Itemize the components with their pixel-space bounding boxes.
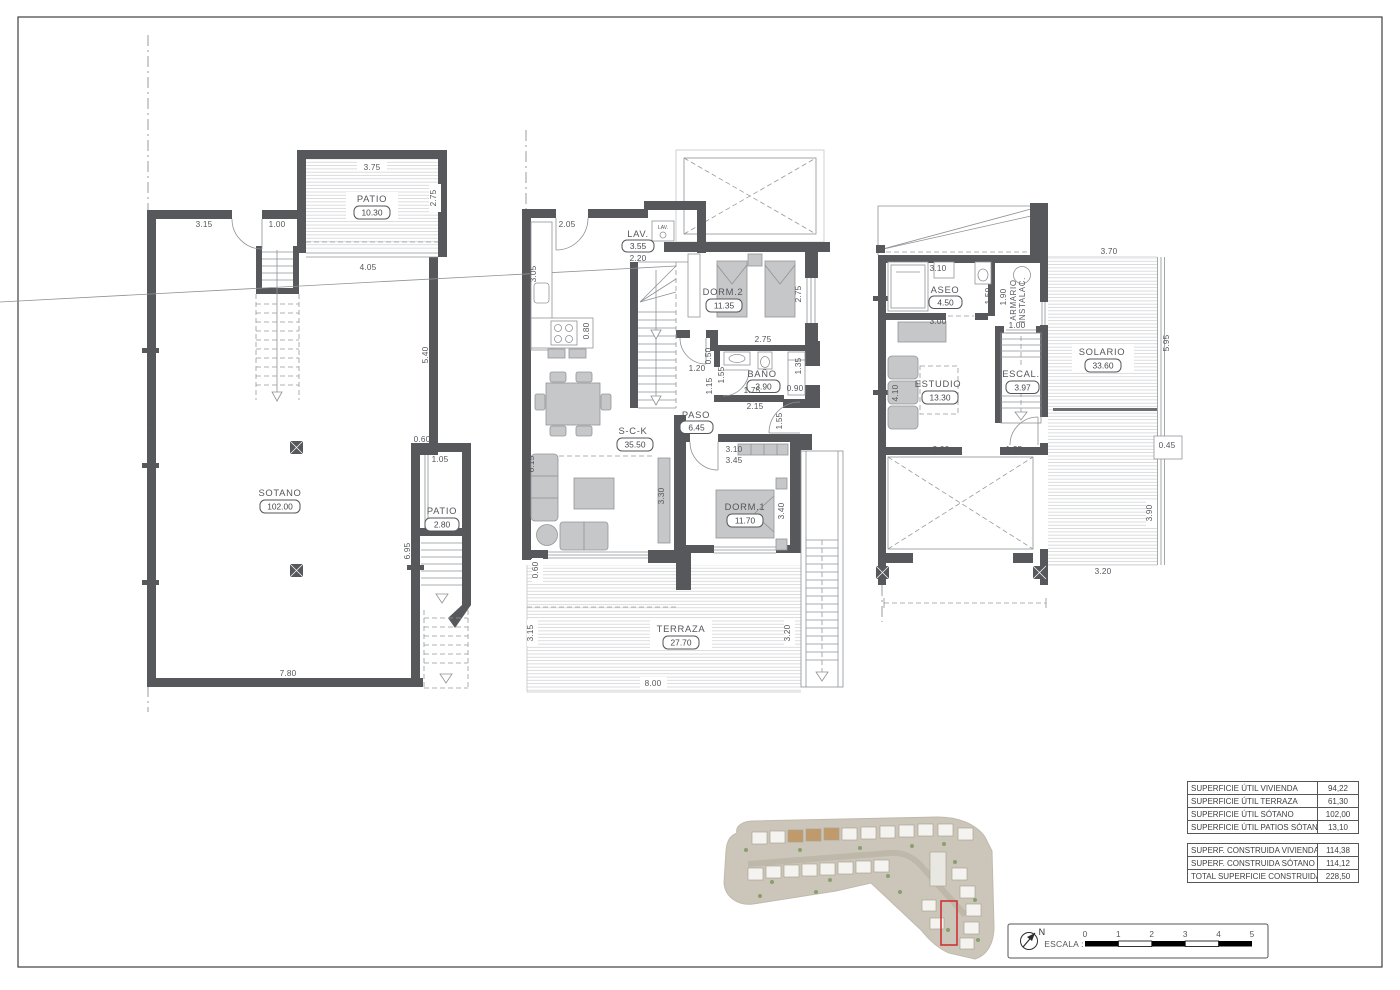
table-row: SUPERF. CONSTRUIDA VIVIENDA114,38	[1188, 844, 1359, 857]
svg-text:ESCAL.: ESCAL.	[1002, 368, 1040, 379]
table-row: SUPERFICIE ÚTIL PATIOS SÓTANO13,10	[1188, 821, 1359, 834]
svg-text:3.45: 3.45	[726, 456, 743, 465]
svg-text:10.30: 10.30	[362, 208, 383, 218]
svg-text:3.15: 3.15	[526, 624, 535, 641]
svg-text:2.75: 2.75	[755, 335, 772, 344]
svg-text:35.50: 35.50	[625, 440, 646, 450]
table-row: SUPERF. CONSTRUIDA SÓTANO114,12	[1188, 857, 1359, 870]
svg-text:ESCALA :: ESCALA :	[1044, 939, 1083, 949]
table-row: TOTAL SUPERFICIE CONSTRUIDA228,50	[1188, 870, 1359, 883]
svg-text:13.30: 13.30	[930, 393, 951, 403]
svg-text:6.95: 6.95	[403, 542, 412, 559]
columns	[876, 566, 1046, 622]
svg-text:3: 3	[1183, 930, 1188, 939]
stair-exterior	[421, 455, 468, 688]
svg-text:TERRAZA: TERRAZA	[657, 623, 706, 634]
solario	[1048, 257, 1182, 565]
scale-bar-box: N ESCALA : 0 1 2 3 4 5	[1008, 924, 1268, 958]
svg-text:3.97: 3.97	[1014, 383, 1031, 393]
svg-text:0.60: 0.60	[414, 435, 431, 444]
svg-text:PASO: PASO	[682, 409, 710, 420]
floor-plan-planta-alta: ASEO 4.50 ARMARIO INSTALAC. ESTUDIO 13.3…	[873, 203, 1182, 622]
svg-text:3.00: 3.00	[933, 445, 950, 454]
svg-text:4: 4	[1216, 930, 1221, 939]
svg-text:3.70: 3.70	[1101, 247, 1118, 256]
svg-text:5: 5	[1250, 930, 1255, 939]
room-label-patio-280: PATIO 2.80	[425, 505, 459, 531]
svg-text:27.70: 27.70	[671, 638, 692, 648]
svg-text:2.75: 2.75	[429, 189, 438, 206]
room-label-patio-10: PATIO 10.30	[346, 192, 398, 220]
scale-bar: 0 1 2 3 4 5	[1083, 930, 1255, 947]
svg-text:3.30: 3.30	[657, 487, 666, 504]
built-surface-table: SUPERF. CONSTRUIDA VIVIENDA114,38 SUPERF…	[1187, 843, 1359, 883]
svg-text:0: 0	[1083, 930, 1088, 939]
svg-text:ESTUDIO: ESTUDIO	[915, 378, 962, 389]
svg-text:PATIO: PATIO	[357, 193, 387, 204]
room-label-terraza: TERRAZA 27.70	[650, 620, 712, 650]
svg-text:2.80: 2.80	[434, 520, 451, 530]
svg-text:1.55: 1.55	[775, 412, 784, 429]
svg-text:3.55: 3.55	[630, 241, 647, 251]
svg-text:1.00: 1.00	[1009, 321, 1026, 330]
svg-text:8.00: 8.00	[645, 679, 662, 688]
svg-text:1.75: 1.75	[744, 386, 761, 395]
svg-text:1.90: 1.90	[999, 288, 1008, 305]
room-label-aseo: ASEO 4.50	[929, 284, 962, 309]
floor-plan-sotano: PATIO 10.30 SOTANO 102.00 PATIO 2.80 3.7…	[142, 35, 471, 712]
svg-text:1.00: 1.00	[269, 220, 286, 229]
svg-text:SOTANO: SOTANO	[258, 487, 301, 498]
svg-text:LAV.: LAV.	[658, 225, 668, 231]
room-label-sotano: SOTANO 102.00	[258, 487, 301, 513]
washing-machine: LAV.	[652, 221, 674, 241]
svg-text:11.70: 11.70	[735, 516, 756, 526]
svg-text:0.90: 0.90	[787, 384, 804, 393]
stair-exterior	[801, 451, 843, 687]
svg-text:6.15: 6.15	[527, 455, 536, 472]
svg-text:BAÑO: BAÑO	[747, 368, 776, 379]
room-label-dorm1: DORM.1 11.70	[725, 501, 766, 527]
svg-text:ASEO: ASEO	[931, 284, 960, 295]
svg-text:3.00: 3.00	[930, 317, 947, 326]
svg-text:INSTALAC.: INSTALAC.	[1018, 277, 1027, 323]
svg-text:1.35: 1.35	[794, 357, 803, 374]
room-label-lav: LAV. 3.55	[622, 228, 654, 252]
room-label-sck: S-C-K 35.50	[617, 425, 653, 451]
stair-interior	[256, 250, 299, 401]
svg-text:3.10: 3.10	[930, 264, 947, 273]
roof-outline	[876, 206, 1040, 255]
svg-text:1.35: 1.35	[1006, 445, 1023, 454]
svg-text:3.05: 3.05	[529, 265, 538, 282]
svg-text:1.20: 1.20	[689, 364, 706, 373]
dining-set	[535, 372, 611, 436]
svg-text:1: 1	[1116, 930, 1121, 939]
svg-text:3.40: 3.40	[777, 502, 786, 519]
svg-text:2.15: 2.15	[747, 402, 764, 411]
estudio-furniture	[888, 322, 958, 429]
svg-text:ARMARIO: ARMARIO	[1009, 279, 1018, 320]
double-height-void	[888, 457, 1033, 549]
svg-text:DORM.2: DORM.2	[703, 286, 744, 297]
useful-surface-table: SUPERFICIE ÚTIL VIVIENDA94,22 SUPERFICIE…	[1187, 781, 1359, 834]
closet-label: ARMARIO INSTALAC.	[1009, 277, 1027, 323]
living-furniture	[531, 454, 670, 550]
svg-text:0.50: 0.50	[704, 347, 713, 364]
svg-text:3.10: 3.10	[726, 445, 743, 454]
svg-text:4.05: 4.05	[360, 263, 377, 272]
svg-text:5.40: 5.40	[421, 346, 430, 363]
svg-text:1.50: 1.50	[984, 287, 993, 304]
svg-text:LAV.: LAV.	[627, 228, 649, 239]
table-row: SUPERFICIE ÚTIL VIVIENDA94,22	[1188, 782, 1359, 795]
site-plan-illustration	[724, 817, 994, 959]
svg-text:3.20: 3.20	[1095, 567, 1112, 576]
svg-text:13.75: 13.75	[146, 417, 155, 439]
svg-text:0.60: 0.60	[531, 561, 540, 578]
svg-text:5.95: 5.95	[1162, 334, 1171, 351]
page-border	[18, 17, 1382, 967]
svg-text:1.15: 1.15	[705, 377, 714, 394]
door	[232, 219, 262, 249]
room-label-solario: SOLARIO 33.60	[1072, 344, 1134, 372]
north-arrow: N	[1021, 927, 1046, 950]
svg-text:7.80: 7.80	[280, 669, 297, 678]
svg-text:11.35: 11.35	[714, 301, 735, 311]
svg-text:4.10: 4.10	[891, 384, 900, 401]
svg-text:S-C-K: S-C-K	[618, 425, 647, 436]
svg-text:2.05: 2.05	[559, 220, 576, 229]
room-label-paso: PASO 6.45	[680, 409, 713, 434]
svg-text:4.50: 4.50	[937, 298, 954, 308]
svg-text:1.05: 1.05	[432, 455, 449, 464]
table-row: SUPERFICIE ÚTIL SÓTANO102,00	[1188, 808, 1359, 821]
svg-text:SOLARIO: SOLARIO	[1079, 346, 1126, 357]
room-label-estudio: ESTUDIO 13.30	[915, 378, 962, 404]
svg-text:2: 2	[1149, 930, 1154, 939]
svg-text:1.55: 1.55	[717, 366, 726, 383]
table-row: SUPERFICIE ÚTIL TERRAZA61,30	[1188, 795, 1359, 808]
svg-text:3.75: 3.75	[364, 163, 381, 172]
svg-text:N: N	[1039, 927, 1046, 937]
svg-text:PATIO: PATIO	[427, 505, 457, 516]
svg-text:6.45: 6.45	[688, 423, 705, 433]
svg-text:0.80: 0.80	[582, 322, 591, 339]
svg-text:2.20: 2.20	[630, 254, 647, 263]
svg-text:DORM.1: DORM.1	[725, 501, 766, 512]
plan-sheet: PATIO 10.30 SOTANO 102.00 PATIO 2.80 3.7…	[0, 0, 1400, 990]
svg-text:2.75: 2.75	[794, 285, 803, 302]
svg-text:33.60: 33.60	[1093, 361, 1114, 371]
svg-text:3.20: 3.20	[783, 624, 792, 641]
surface-table: SUPERFICIE ÚTIL VIVIENDA94,22 SUPERFICIE…	[1187, 781, 1359, 883]
room-label-escal: ESCAL. 3.97	[1002, 366, 1040, 394]
svg-text:3.90: 3.90	[1145, 504, 1154, 521]
room-label-dorm2: DORM.2 11.35	[703, 286, 744, 312]
svg-text:102.00: 102.00	[267, 502, 293, 512]
svg-text:0.45: 0.45	[1159, 441, 1176, 450]
svg-text:3.15: 3.15	[196, 220, 213, 229]
